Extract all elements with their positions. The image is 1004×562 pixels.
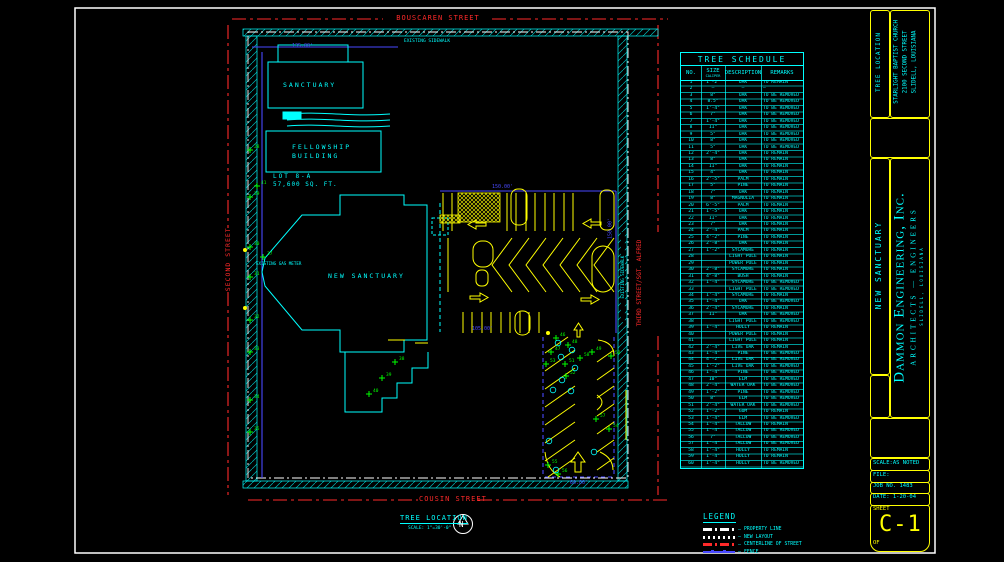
svg-text:48: 48 [572, 339, 578, 345]
legend-label: CENTERLINE OF STREET [744, 542, 802, 547]
tree-schedule-rows: 11'-2"OAKTO REMAIN2———38"OAKTO BE REMOVE… [681, 80, 803, 468]
sheet-border [75, 8, 935, 553]
plan-linework: 2829303132333435374138394046474849505152… [0, 0, 1004, 562]
titleblock-file: FILE: [873, 473, 890, 479]
svg-text:49: 49 [596, 346, 602, 352]
svg-text:39: 39 [386, 372, 392, 378]
titleblock-of: OF [873, 541, 880, 547]
property-line [248, 32, 628, 478]
legend-item: —NEW LAYOUT [703, 534, 853, 542]
titleblock-sheet-number: C-1 [879, 514, 922, 536]
sanctuary-label: SANCTUARY [283, 82, 336, 89]
parking-striping [388, 189, 626, 477]
legend-label: PROPERTY LINE [744, 527, 782, 532]
svg-text:50: 50 [615, 350, 621, 356]
tree-schedule-header: NO. SIZECALIPER DESCRIPTION REMARKS [681, 66, 803, 81]
titleblock-sheet-title: NEW SANCTUARY [875, 160, 883, 370]
svg-text:54: 54 [613, 423, 619, 429]
svg-text:31: 31 [254, 271, 260, 277]
table-row: 601'-4"HOLLYTO BE REMOVED [681, 461, 803, 467]
svg-text:47: 47 [555, 346, 561, 352]
new-sanctuary-label: NEW SANCTUARY [328, 273, 405, 280]
street-label-top: BOUSCAREN STREET [384, 15, 492, 22]
titleblock-empty-box-2 [870, 375, 890, 418]
svg-text:41: 41 [261, 180, 267, 186]
svg-text:35: 35 [254, 426, 260, 432]
legend-item: —PROPERTY LINE [703, 526, 853, 534]
titleblock-date: DATE: 1-20-04 [873, 495, 916, 501]
legend-item: —FENCE [703, 549, 853, 557]
svg-text:32: 32 [254, 314, 260, 320]
lot-label-2: 57,600 SQ. FT. [273, 182, 338, 188]
svg-text:55: 55 [552, 459, 558, 465]
tree-schedule-table: TREE SCHEDULE NO. SIZECALIPER DESCRIPTIO… [680, 52, 804, 469]
svg-text:58: 58 [584, 352, 590, 358]
dim-right: 150.00' [609, 209, 614, 249]
titleblock-client-3: SLIDELL, LOUISIANA [913, 10, 919, 113]
col-size-sub: CALIPER [706, 74, 721, 78]
north-arrow-letter: N [459, 521, 464, 529]
dim-top-left: 135.00' [292, 44, 313, 49]
dim-bottom: 60.00' [570, 481, 588, 486]
svg-text:38: 38 [399, 356, 405, 362]
svg-text:28: 28 [254, 144, 260, 150]
svg-text:40: 40 [373, 388, 379, 394]
titleblock-job: JOB NO. 1483 [873, 484, 913, 490]
street-label-right: THIRD STREET/SGT. ALFRED [637, 203, 643, 363]
svg-text:56: 56 [562, 468, 568, 474]
svg-text:29: 29 [254, 191, 260, 197]
titleblock-empty-box-3 [870, 418, 930, 458]
svg-text:33: 33 [254, 346, 260, 352]
fellowship-label-1: FELLOWSHIP [292, 144, 351, 151]
titleblock-firm: Dammon Engineering, Inc. [893, 163, 908, 413]
titleblock-firm-addr: SLIDELL, LOUISIANA [920, 161, 924, 411]
titleblock-client-1: STARLIGHT BAPTIST CHURCH [895, 10, 901, 113]
sidewalk-label-top: EXISTING SIDEWALK [404, 40, 450, 45]
street-label-bottom: COUSIN STREET [419, 496, 477, 503]
col-remarks: REMARKS [770, 70, 793, 76]
svg-text:57: 57 [600, 413, 606, 419]
dim-top-right: 150.00' [492, 185, 513, 190]
fellowship-label-2: BUILDING [292, 153, 339, 160]
svg-text:51: 51 [569, 358, 575, 364]
caption-scale: SCALE: 1"=30'-0" [408, 527, 451, 532]
legend-title: LEGEND [703, 512, 736, 523]
lot-label-1: LOT 8-A [273, 174, 312, 180]
titleblock-project: TREE LOCATION [876, 12, 882, 112]
legend-label: FENCE [744, 550, 758, 555]
titleblock-client-2: 2100 SECOND STREET [904, 10, 910, 113]
sidewalk-label-right: EXISTING SIDEWALK [621, 232, 625, 322]
col-no: NO. [686, 70, 696, 76]
cad-sheet: 2829303132333435374138394046474849505152… [0, 0, 1004, 562]
titleblock-scale: SCALE:AS NOTED [873, 461, 919, 467]
tree-schedule-title: TREE SCHEDULE [681, 53, 803, 66]
street-label-left: SECOND STREET [225, 199, 232, 319]
legend-label: NEW LAYOUT [744, 535, 773, 540]
legend: LEGEND —PROPERTY LINE—NEW LAYOUT—CENTERL… [703, 504, 853, 556]
svg-text:34: 34 [254, 394, 260, 400]
col-description: DESCRIPTION [725, 70, 761, 76]
svg-text:30: 30 [254, 241, 260, 247]
titleblock-firm-sub: ARCHITECTS — ENGINEERS [911, 162, 918, 412]
gas-meter-label: EXISTING GAS METER [256, 262, 301, 266]
tree-number-markers: 2829303132333435374138394046474849505152… [247, 144, 621, 477]
titleblock-empty-box-1 [870, 118, 930, 158]
legend-item: —CENTERLINE OF STREET [703, 541, 853, 549]
svg-text:37: 37 [267, 251, 273, 257]
caption-title: TREE LOCATION [400, 515, 468, 524]
svg-text:46: 46 [560, 332, 566, 338]
buildings [262, 45, 448, 412]
svg-text:53: 53 [550, 358, 556, 364]
dim-mid: 105.00' [472, 327, 493, 332]
